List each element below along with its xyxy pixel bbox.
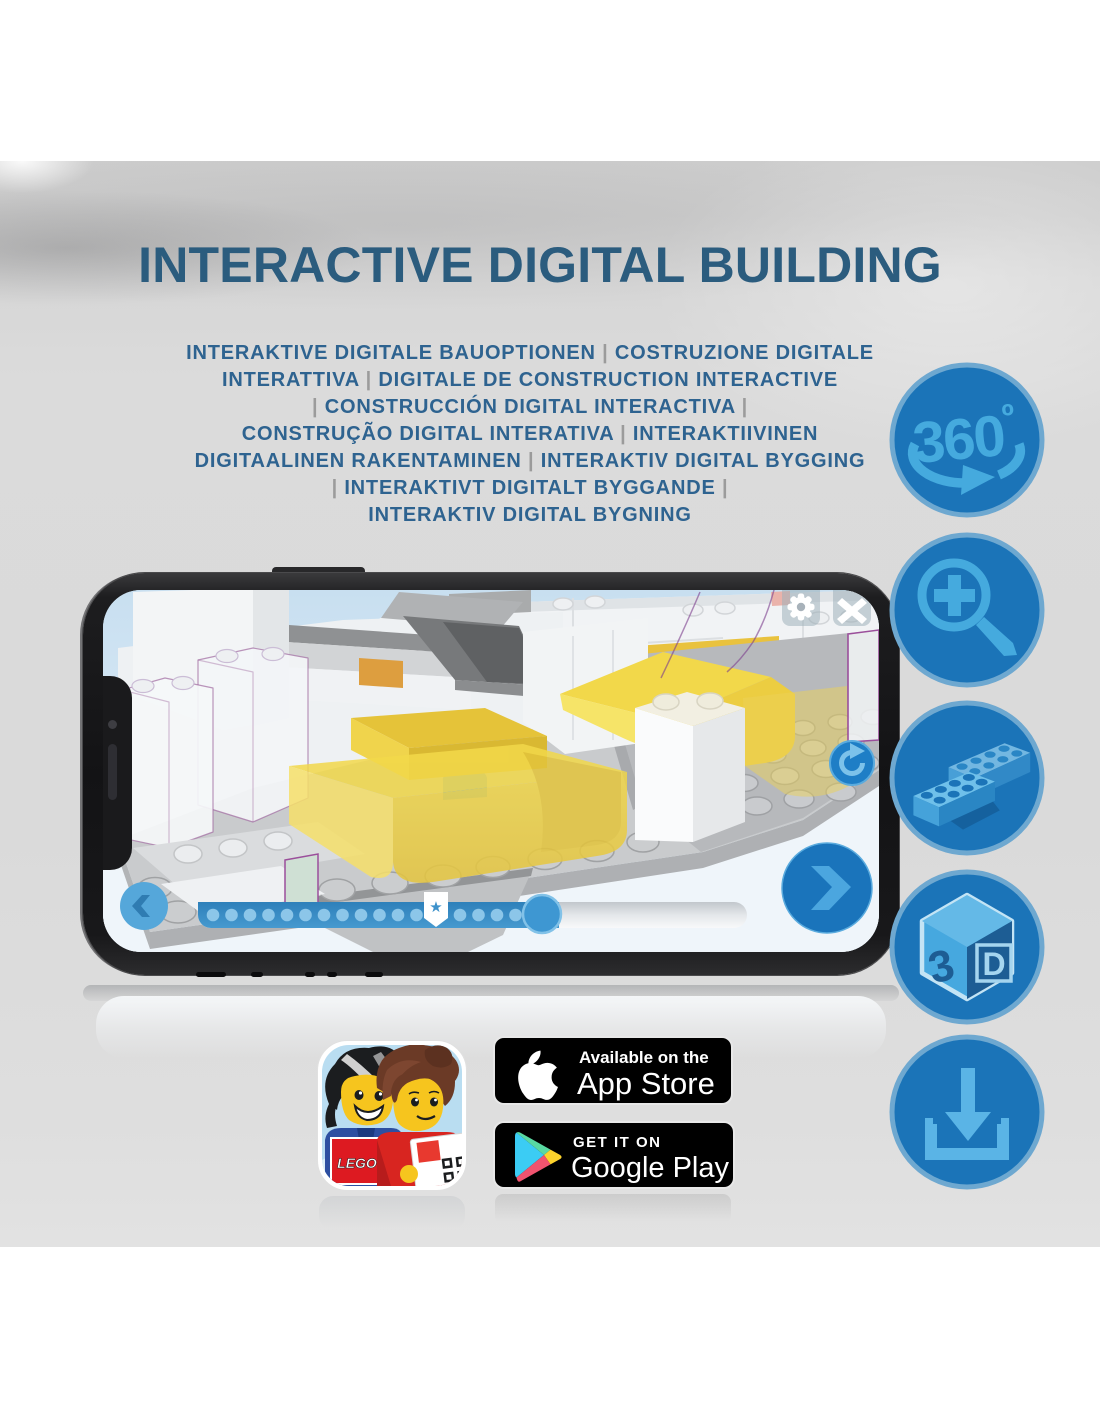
svg-text:Google Play: Google Play	[571, 1152, 729, 1184]
svg-text:D: D	[982, 946, 1005, 982]
svg-text:App Store: App Store	[577, 1066, 715, 1101]
svg-text:LEGO: LEGO	[337, 1155, 377, 1171]
svg-text:Available on the: Available on the	[579, 1048, 709, 1067]
svg-text:360: 360	[910, 403, 1006, 476]
svg-text:GET IT ON: GET IT ON	[573, 1134, 662, 1151]
svg-text:★: ★	[429, 899, 442, 916]
